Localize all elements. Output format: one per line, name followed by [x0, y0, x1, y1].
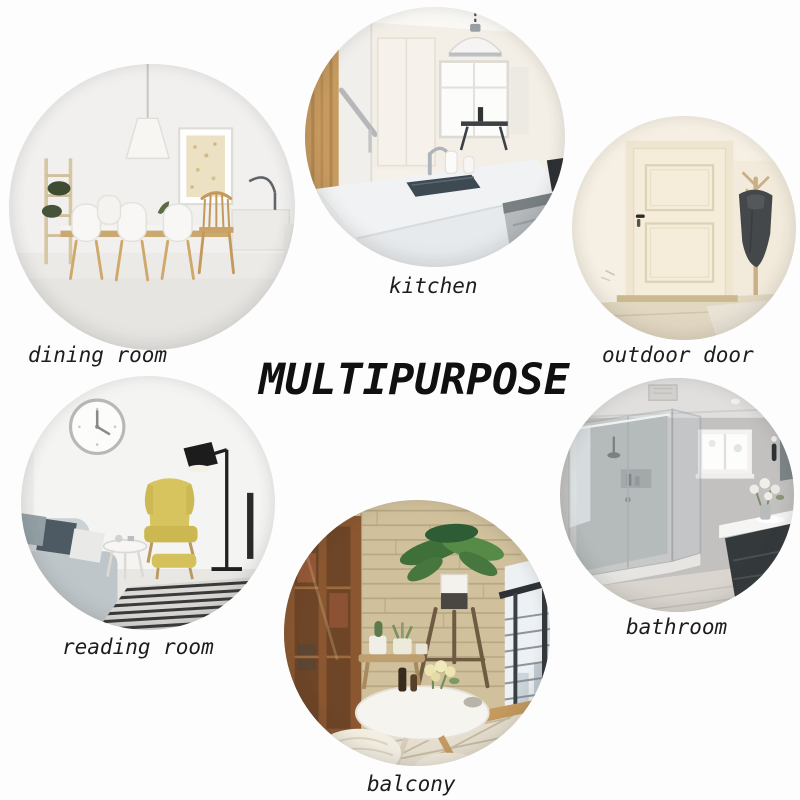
reading-room-scene — [21, 376, 275, 630]
bathroom-photo — [560, 378, 794, 612]
outdoor-door-scene — [572, 116, 796, 340]
window — [696, 429, 755, 478]
reading-room-photo — [21, 376, 275, 630]
label-outdoor-door: outdoor door — [602, 344, 754, 367]
label-dining-room: dining room — [28, 344, 167, 367]
kitchen-scene — [305, 7, 565, 267]
shower-glass — [569, 410, 700, 591]
product-collage: MULTIPURPOSE dining room kitchen outdoor… — [0, 0, 800, 800]
door — [634, 148, 726, 296]
label-balcony: balcony — [367, 773, 456, 796]
balcony-photo — [284, 500, 550, 766]
label-reading-room: reading room — [62, 636, 214, 659]
glass-door — [284, 516, 361, 745]
dining-room-photo — [9, 64, 295, 350]
wall-clock — [71, 400, 124, 453]
label-bathroom: bathroom — [626, 616, 727, 639]
yellow-armchair — [144, 478, 197, 579]
balcony-scene — [284, 500, 550, 766]
kitchen-photo — [305, 7, 565, 267]
bathroom-scene — [560, 378, 794, 612]
tall-cabinet — [378, 38, 435, 165]
label-kitchen: kitchen — [389, 275, 478, 298]
page-title: MULTIPURPOSE — [259, 358, 570, 403]
outdoor-door-photo — [572, 116, 796, 340]
dining-room-scene — [9, 64, 295, 350]
